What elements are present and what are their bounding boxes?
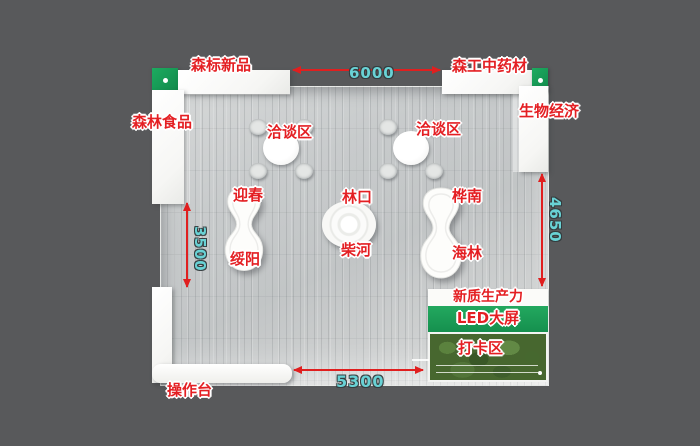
shelf-label-left: 森林食品 (132, 114, 192, 131)
led-screen: LED大屏 (428, 306, 548, 332)
chair (425, 163, 443, 179)
left-wall-ledge (184, 90, 190, 204)
stand-left-top-label: 迎春 (233, 187, 263, 204)
planter-line (436, 372, 538, 373)
corner-dot-icon (538, 371, 542, 375)
shelf-label-top-right: 森工中药材 (452, 58, 527, 75)
planter-line (436, 365, 538, 366)
shelf-label-right: 生物经济 (519, 103, 579, 120)
stand-right-top-label: 桦南 (452, 188, 482, 205)
dimension-arrow-bottom (294, 369, 423, 371)
chair (379, 163, 397, 179)
table-center-bottom-label: 柴河 (341, 242, 371, 259)
dimension-top: 6000 (349, 64, 395, 82)
led-screen-label: LED大屏 (457, 310, 519, 327)
dimension-arrow-left (186, 203, 188, 287)
banner-label: 新质生产力 (453, 289, 523, 305)
photo-zone-label: 打卡区 (458, 340, 503, 357)
stand-left-bottom-label: 绥阳 (230, 251, 260, 268)
chair (295, 163, 313, 179)
corner-post-dot-icon (538, 78, 543, 83)
banner-strip: 新质生产力 (428, 289, 548, 306)
chair (379, 119, 397, 135)
table-center-top-label: 林口 (342, 189, 372, 206)
dimension-arrow-right (541, 174, 543, 286)
shelf-edge-line (412, 359, 429, 361)
corner-post-dot-icon (163, 78, 168, 83)
wall-left-upper (152, 90, 184, 204)
negotiation-label-left: 洽谈区 (267, 124, 312, 141)
wall-right-upper (519, 86, 548, 172)
dimension-bottom: 5300 (336, 372, 385, 391)
stand-right-bottom-label: 海林 (452, 245, 482, 262)
corner-post-top-left (152, 68, 178, 92)
negotiation-label-right: 洽谈区 (416, 121, 461, 138)
dimension-right: 4650 (546, 197, 564, 243)
counter-label: 操作台 (167, 382, 212, 399)
chair (249, 163, 267, 179)
dimension-left: 3500 (191, 226, 209, 272)
booth-floor-plan: 新质生产力 LED大屏 打卡区 森标新品 森工中药材 森林食品 生物经济 洽谈区 (0, 0, 700, 446)
chair (249, 119, 267, 135)
shelf-label-top-left: 森标新品 (191, 57, 251, 74)
